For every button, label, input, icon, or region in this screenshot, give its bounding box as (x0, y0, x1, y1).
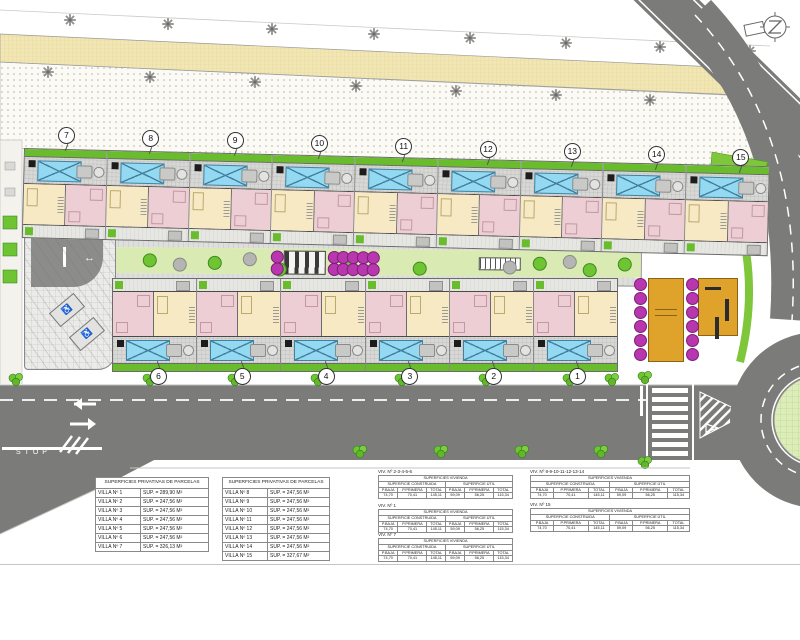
surface-value: 115,34 (494, 493, 513, 499)
driveway (519, 237, 601, 251)
parcel-row: VILLA Nº 2SUP. = 247,56 M² (96, 498, 209, 507)
surface-value: 59,09 (445, 493, 464, 499)
villa-marker-1: 1 (569, 368, 586, 385)
villa-name: VILLA Nº 2 (96, 498, 141, 507)
driveway (354, 233, 436, 247)
round-planter (507, 177, 518, 188)
stop-road-marking: STOP (16, 449, 51, 456)
driveway (534, 279, 617, 291)
swimming-pool (699, 177, 743, 199)
bedroom-area (450, 292, 490, 336)
living-area (406, 292, 449, 336)
house-footprint (271, 189, 354, 233)
driveway (602, 239, 684, 253)
surface-value: 115,34 (667, 526, 689, 532)
flower-tree-icon (686, 292, 699, 305)
parked-car (490, 175, 506, 188)
villa-row-bottom (112, 278, 618, 372)
surface-value: 70,41 (398, 493, 427, 499)
bedroom-area (728, 201, 768, 242)
parcel-row: VILLA Nº 14SUP. = 247,56 M² (223, 543, 330, 552)
villa-marker-14: 14 (648, 146, 665, 163)
pool-terrace (197, 337, 280, 363)
parked-car (587, 344, 603, 357)
parcel-row: VILLA Nº 12SUP. = 247,56 M² (223, 525, 330, 534)
villa-area: SUP. = 247,56 M² (268, 534, 330, 543)
driveway (450, 279, 533, 291)
tech-box (29, 160, 36, 167)
surface-value: 70,41 (554, 526, 589, 532)
villa-name: VILLA Nº 4 (96, 516, 141, 525)
flower-tree-icon (686, 278, 699, 291)
villa-name: VILLA Nº 5 (96, 525, 141, 534)
bush-icon (208, 256, 222, 270)
gray-bush-icon (173, 258, 187, 272)
round-planter (520, 345, 531, 356)
villa-marker-7: 7 (58, 127, 75, 144)
villa-6 (113, 279, 196, 371)
swimming-pool (203, 164, 247, 186)
villa-area: SUP. = 247,56 M² (268, 489, 330, 498)
surface-value: 115,34 (494, 556, 513, 562)
flower-tree-icon (686, 334, 699, 347)
round-planter (424, 175, 435, 186)
bedroom-area (281, 292, 321, 336)
unit-table-3: VIV. Nº 7SUPERFICIES VIVIENDASUPERFICIE … (378, 532, 513, 562)
driveway (106, 227, 188, 241)
villa-3 (365, 279, 449, 371)
flower-tree-icon (634, 278, 647, 291)
bedroom-area (66, 185, 106, 226)
tech-box (277, 166, 284, 173)
pool-terrace (366, 337, 449, 363)
plaza-road-end: ↔ (31, 235, 103, 287)
flower-tree-icon (634, 334, 647, 347)
villa-marker-12: 12 (480, 141, 497, 158)
parcel-row: VILLA Nº 5SUP. = 247,56 M² (96, 525, 209, 534)
swimming-pool (126, 340, 170, 361)
parcel-row: VILLA Nº 1SUP. = 289,90 M² (96, 489, 209, 498)
walkway-garden (113, 247, 641, 278)
bedroom-area (479, 195, 519, 236)
tech-box (285, 340, 292, 347)
road-bar-marking (63, 247, 66, 267)
bedroom-area (148, 187, 188, 228)
tech-box (454, 340, 461, 347)
round-planter (590, 179, 601, 190)
parked-car (242, 169, 258, 182)
surface-value: 59,09 (610, 526, 633, 532)
tech-box (194, 164, 201, 171)
surface-value: 70,41 (398, 556, 427, 562)
pool-terrace (190, 161, 272, 189)
driveway (281, 279, 364, 291)
villa-name: VILLA Nº 12 (223, 525, 268, 534)
villa-area: SUP. = 247,56 M² (268, 498, 330, 507)
tech-box (360, 168, 367, 175)
driveway (188, 229, 270, 243)
amenity-zone (632, 266, 742, 368)
parked-car (503, 344, 519, 357)
parcel-row: VILLA Nº 10SUP. = 247,56 M² (223, 507, 330, 516)
parked-car (573, 177, 589, 190)
surface-value: 145,11 (588, 493, 610, 499)
living-area (520, 196, 563, 237)
parcel-row: VILLA Nº 3SUP. = 247,56 M² (96, 507, 209, 516)
surface-col-header: P.PRIMERA (465, 521, 494, 527)
tech-box (538, 340, 545, 347)
villa-area: SUP. = 247,56 M² (141, 525, 209, 534)
parked-car (655, 179, 671, 192)
round-planter (352, 345, 363, 356)
villa-marker-9: 9 (227, 132, 244, 149)
parcel-row: VILLA Nº 11SUP. = 247,56 M² (223, 516, 330, 525)
bush-icon (618, 257, 632, 271)
tech-box (370, 340, 377, 347)
villa-name: VILLA Nº 1 (96, 489, 141, 498)
villa-9 (187, 153, 272, 243)
villa-name: VILLA Nº 9 (223, 498, 268, 507)
parked-car (250, 344, 266, 357)
unit-table-5: VIV. Nº 15SUPERFICIES VIVIENDASUPERFICIE… (530, 502, 690, 532)
pool-terrace (355, 165, 437, 193)
house-footprint (189, 187, 272, 231)
bush-icon (583, 263, 597, 277)
parcel-row: VILLA Nº 8SUP. = 247,56 M² (223, 489, 330, 498)
parcel-table-title: SUPERFICIES PRIVATIVAS DE PARCELAS (223, 478, 330, 489)
pool-terrace (534, 337, 617, 363)
living-area (189, 188, 232, 229)
bedroom-area (231, 189, 271, 230)
bush-icon (413, 262, 427, 276)
pool-terrace (24, 157, 106, 185)
round-planter (183, 345, 194, 356)
unit-surface-table: SUPERFICIES VIVIENDASUPERFICIE CONSTRUID… (378, 509, 513, 533)
surface-group-header: SUPERFICIE CONSTRUIDA (379, 481, 446, 487)
living-area (23, 184, 66, 225)
villa-4 (280, 279, 364, 371)
villa-area: SUP. = 326,13 M² (141, 543, 209, 552)
villa-name: VILLA Nº 10 (223, 507, 268, 516)
parked-car (419, 344, 435, 357)
accessible-parking-bay: ♿ (49, 293, 85, 327)
round-planter (604, 345, 615, 356)
living-area (574, 292, 617, 336)
flower-tree-icon (271, 262, 284, 275)
flower-tree-icon (634, 320, 647, 333)
villa-marker-5: 5 (234, 368, 251, 385)
surface-value: 56,25 (465, 493, 494, 499)
parcel-row: VILLA Nº 7SUP. = 326,13 M² (96, 543, 209, 552)
parked-car (324, 171, 340, 184)
parcel-table-1-7: SUPERFICIES PRIVATIVAS DE PARCELASVILLA … (95, 477, 209, 552)
surface-value: 74,70 (379, 556, 398, 562)
gray-bush-icon (503, 260, 517, 274)
villa-marker-8: 8 (142, 130, 159, 147)
house-footprint (520, 195, 603, 239)
villa-area: SUP. = 247,56 M² (141, 516, 209, 525)
villa-name: VILLA Nº 3 (96, 507, 141, 516)
pool-terrace (521, 169, 603, 197)
villa-area: SUP. = 247,56 M² (268, 525, 330, 534)
site-plan: ↔ ♿ ♿ STOP SUPERFICIES PRIVATIVAS DE PAR… (0, 0, 800, 640)
villa-marker-4: 4 (318, 368, 335, 385)
pool-terrace (107, 159, 189, 187)
surface-col-header: P.PRIMERA (465, 487, 494, 493)
house-footprint (685, 199, 768, 243)
villa-2 (449, 279, 533, 371)
tech-box (525, 172, 532, 179)
parcel-row: VILLA Nº 4SUP. = 247,56 M² (96, 516, 209, 525)
villa-12 (436, 159, 521, 249)
unit-surface-table: SUPERFICIES VIVIENDASUPERFICIE CONSTRUID… (530, 508, 690, 532)
villa-marker-10: 10 (311, 135, 328, 152)
villa-marker-15: 15 (732, 149, 749, 166)
flower-tree-icon (686, 306, 699, 319)
living-area (490, 292, 533, 336)
living-area (153, 292, 196, 336)
parked-car (407, 173, 423, 186)
surface-value: 56,25 (465, 556, 494, 562)
driveway (197, 279, 280, 291)
surface-value: 56,25 (633, 526, 668, 532)
swimming-pool (285, 166, 329, 188)
villa-area: SUP. = 247,56 M² (141, 498, 209, 507)
house-footprint (281, 291, 364, 337)
parked-car (166, 344, 182, 357)
villa-15 (684, 165, 769, 255)
bedroom-area (314, 191, 354, 232)
bush-icon (533, 257, 547, 271)
living-area (237, 292, 280, 336)
flower-tree-icon (367, 263, 380, 276)
surface-value: 145,11 (588, 526, 610, 532)
tech-box (117, 340, 124, 347)
two-way-arrow-marking: ↔ (84, 253, 95, 264)
villa-area: SUP. = 247,56 M² (268, 507, 330, 516)
unit-table-label: VIV. Nº 15 (530, 502, 690, 507)
villa-area: SUP. = 247,56 M² (141, 507, 209, 516)
accessible-parking-bay: ♿ (69, 317, 105, 351)
bedroom-area (113, 292, 153, 336)
villa-area: SUP. = 289,90 M² (141, 489, 209, 498)
villa-marker-13: 13 (564, 143, 581, 160)
villa-13 (518, 161, 603, 251)
surface-col-header: P.PRIMERA (398, 487, 427, 493)
house-footprint (534, 291, 617, 337)
unit-surface-table: SUPERFICIES VIVIENDASUPERFICIE CONSTRUID… (378, 538, 513, 562)
driveway (271, 231, 353, 245)
swimming-pool (451, 170, 495, 192)
villa-marker-11: 11 (395, 138, 412, 155)
amenity-building-a (648, 278, 684, 362)
parcel-table-8-15: SUPERFICIES PRIVATIVAS DE PARCELASVILLA … (222, 477, 330, 561)
surface-value: 115,34 (667, 493, 689, 499)
left-sidewalk (0, 140, 22, 386)
driveway (23, 225, 105, 239)
unit-table-2: VIV. Nº 1SUPERFICIES VIVIENDASUPERFICIE … (378, 503, 513, 533)
bedroom-area (397, 193, 437, 234)
living-area (685, 200, 728, 241)
bush-icon (143, 253, 157, 267)
swimming-pool (379, 340, 423, 361)
surface-value: 145,11 (427, 556, 446, 562)
swimming-pool (37, 160, 81, 182)
surface-group-header: SUPERFICIE CONSTRUIDA (379, 515, 446, 521)
unit-table-label: VIV. Nº 2-3-4-5-6 (378, 469, 513, 474)
surface-value: 74,70 (531, 493, 554, 499)
flower-tree-icon (686, 348, 699, 361)
pool-terrace (113, 337, 196, 363)
pool-terrace (281, 337, 364, 363)
swimming-pool (547, 340, 591, 361)
round-planter (267, 345, 278, 356)
villa-area: SUP. = 247,56 M² (268, 516, 330, 525)
surface-col-header: P.PRIMERA (398, 550, 427, 556)
house-footprint (23, 183, 106, 227)
pool-terrace (603, 171, 685, 199)
tech-box (201, 340, 208, 347)
swimming-pool (210, 340, 254, 361)
house-footprint (437, 193, 520, 237)
bedroom-area (197, 292, 237, 336)
villa-1 (533, 279, 617, 371)
villa-name: VILLA Nº 15 (223, 552, 268, 561)
bedroom-area (562, 197, 602, 238)
unit-surface-table: SUPERFICIES VIVIENDASUPERFICIE CONSTRUID… (530, 475, 690, 499)
gray-bush-icon (563, 255, 577, 269)
driveway (685, 241, 767, 255)
villa-name: VILLA Nº 14 (223, 543, 268, 552)
villa-area: SUP. = 327,67 M² (268, 552, 330, 561)
house-footprint (450, 291, 533, 337)
unit-table-label: VIV. Nº 8-9-10-11-12-13-14 (530, 469, 690, 474)
villa-name: VILLA Nº 11 (223, 516, 268, 525)
pool-terrace (686, 173, 768, 201)
pool-terrace (438, 167, 520, 195)
unit-table-label: VIV. Nº 1 (378, 503, 513, 508)
unit-table-4: VIV. Nº 8-9-10-11-12-13-14SUPERFICIES VI… (530, 469, 690, 499)
amenity-building-b (698, 278, 738, 336)
north-arrow-icon (744, 12, 790, 42)
swimming-pool (534, 172, 578, 194)
round-planter (672, 181, 683, 192)
round-planter (755, 183, 766, 194)
driveway (113, 279, 196, 291)
flower-tree-icon (686, 320, 699, 333)
round-planter (259, 171, 270, 182)
surface-group-header: SUPERFICIE CONSTRUIDA (379, 544, 446, 550)
pool-terrace (272, 163, 354, 191)
living-area (437, 194, 480, 235)
flower-tree-icon (634, 306, 647, 319)
surface-col-header: P.PRIMERA (465, 550, 494, 556)
swimming-pool (120, 162, 164, 184)
living-area (354, 192, 397, 233)
parcel-row: VILLA Nº 9SUP. = 247,56 M² (223, 498, 330, 507)
flower-tree-icon (634, 292, 647, 305)
house-footprint (113, 291, 196, 337)
parcel-row: VILLA Nº 13SUP. = 247,56 M² (223, 534, 330, 543)
living-area (106, 186, 149, 227)
surface-value: 74,70 (531, 526, 554, 532)
surface-value: 59,09 (445, 556, 464, 562)
house-footprint (354, 191, 437, 235)
parcel-row: VILLA Nº 6SUP. = 247,56 M² (96, 534, 209, 543)
sheet-divider-line (0, 564, 800, 565)
surface-value: 56,25 (633, 493, 668, 499)
bedroom-area (645, 199, 685, 240)
surface-value: 74,70 (379, 493, 398, 499)
villa-5 (196, 279, 280, 371)
parked-car (159, 167, 175, 180)
swimming-pool (616, 174, 660, 196)
surface-value: 145,11 (427, 493, 446, 499)
parcel-row: VILLA Nº 15SUP. = 327,67 M² (223, 552, 330, 561)
unit-table-label: VIV. Nº 7 (378, 532, 513, 537)
villa-name: VILLA Nº 13 (223, 534, 268, 543)
gray-bush-icon (243, 252, 257, 266)
driveway (437, 235, 519, 249)
villa-name: VILLA Nº 8 (223, 489, 268, 498)
driveway (366, 279, 449, 291)
round-planter (436, 345, 447, 356)
tech-box (442, 170, 449, 177)
swimming-pool (463, 340, 507, 361)
entrance-plaza: ↔ ♿ ♿ (24, 228, 116, 370)
house-footprint (197, 291, 280, 337)
living-area (271, 190, 314, 231)
parked-car (76, 165, 92, 178)
villa-8 (105, 151, 190, 241)
villa-marker-6: 6 (150, 368, 167, 385)
villa-name: VILLA Nº 7 (96, 543, 141, 552)
house-footprint (366, 291, 449, 337)
living-area (602, 198, 645, 239)
villa-10 (270, 155, 355, 245)
parcel-table-title: SUPERFICIES PRIVATIVAS DE PARCELAS (96, 478, 209, 489)
living-area (321, 292, 364, 336)
round-planter (341, 173, 352, 184)
villa-11 (353, 157, 438, 247)
round-planter (93, 167, 104, 178)
unit-surface-table: SUPERFICIES VIVIENDASUPERFICIE CONSTRUID… (378, 475, 513, 499)
round-planter (176, 169, 187, 180)
bedroom-area (366, 292, 406, 336)
tech-box (608, 174, 615, 181)
tech-box (111, 162, 118, 169)
parked-car (335, 344, 351, 357)
unit-table-1: VIV. Nº 2-3-4-5-6SUPERFICIES VIVIENDASUP… (378, 469, 513, 499)
villa-7 (23, 149, 107, 239)
surface-col-header: P.PRIMERA (398, 521, 427, 527)
flower-tree-icon (634, 348, 647, 361)
house-footprint (602, 197, 685, 241)
villa-area: SUP. = 247,56 M² (268, 543, 330, 552)
swimming-pool (294, 340, 338, 361)
pool-terrace (450, 337, 533, 363)
villa-14 (601, 163, 686, 253)
villa-name: VILLA Nº 6 (96, 534, 141, 543)
parked-car (738, 181, 754, 194)
tech-box (691, 176, 698, 183)
surface-value: 59,09 (610, 493, 633, 499)
pergola (284, 251, 326, 275)
house-footprint (106, 185, 189, 229)
swimming-pool (368, 168, 412, 190)
surface-value: 70,41 (554, 493, 589, 499)
villa-area: SUP. = 247,56 M² (141, 534, 209, 543)
